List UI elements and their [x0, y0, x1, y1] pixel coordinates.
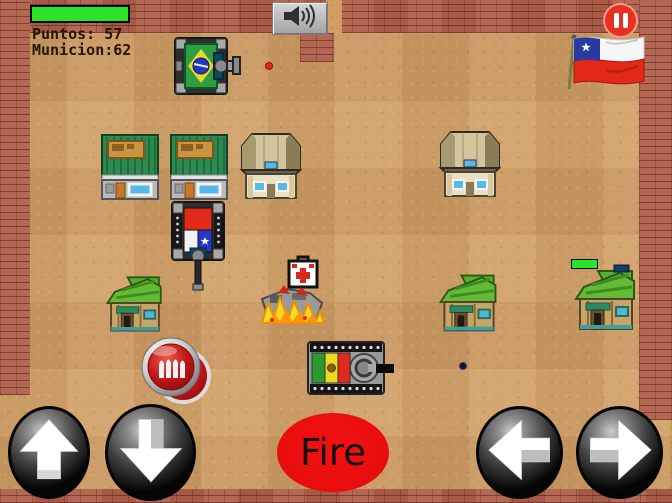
- enemy-tank-chile: [170, 200, 226, 297]
- player-tank-brazil: [173, 36, 241, 101]
- player-health-bar: [30, 5, 130, 23]
- dark-bullet: [459, 362, 467, 370]
- building-green-house: [574, 263, 638, 342]
- pause-button[interactable]: [603, 3, 638, 38]
- red-bullet: [265, 62, 273, 70]
- arrow-down-icon: [113, 409, 189, 496]
- player-health-fill: [32, 7, 128, 21]
- arrow-up-icon: [13, 411, 85, 494]
- building-tan-house: [437, 130, 503, 203]
- score-label: Puntos: 57: [32, 26, 122, 42]
- building-green-house: [104, 270, 166, 343]
- move-right-button[interactable]: [576, 406, 663, 499]
- pause-icon: [614, 13, 619, 28]
- ammo-bullets-pickup: [140, 335, 212, 410]
- wall-gap: [326, 0, 342, 33]
- enemy-health-bar: [571, 259, 598, 269]
- wall-left: [0, 0, 30, 395]
- fire-button[interactable]: Fire: [277, 413, 389, 492]
- building-green-house: [437, 268, 501, 343]
- speaker-icon: [280, 3, 320, 34]
- pause-icon: [623, 13, 628, 28]
- game-stage: Puntos: 57 Municion:62: [0, 0, 672, 503]
- move-up-button[interactable]: [8, 406, 90, 499]
- arrow-left-icon: [483, 411, 557, 494]
- chile-flag-banner: [566, 32, 648, 97]
- building-green-mart: [170, 132, 228, 205]
- arrow-right-icon: [583, 411, 657, 494]
- fire-button-label: Fire: [300, 431, 366, 474]
- sound-button[interactable]: [272, 2, 328, 35]
- ammo-label: Municion:62: [32, 42, 131, 58]
- enemy-tank-bolivia: [306, 340, 394, 402]
- burning-tank-explosion: [258, 281, 330, 332]
- building-tan-house: [238, 132, 304, 205]
- move-down-button[interactable]: [105, 404, 196, 501]
- move-left-button[interactable]: [476, 406, 563, 499]
- building-green-mart: [101, 132, 159, 205]
